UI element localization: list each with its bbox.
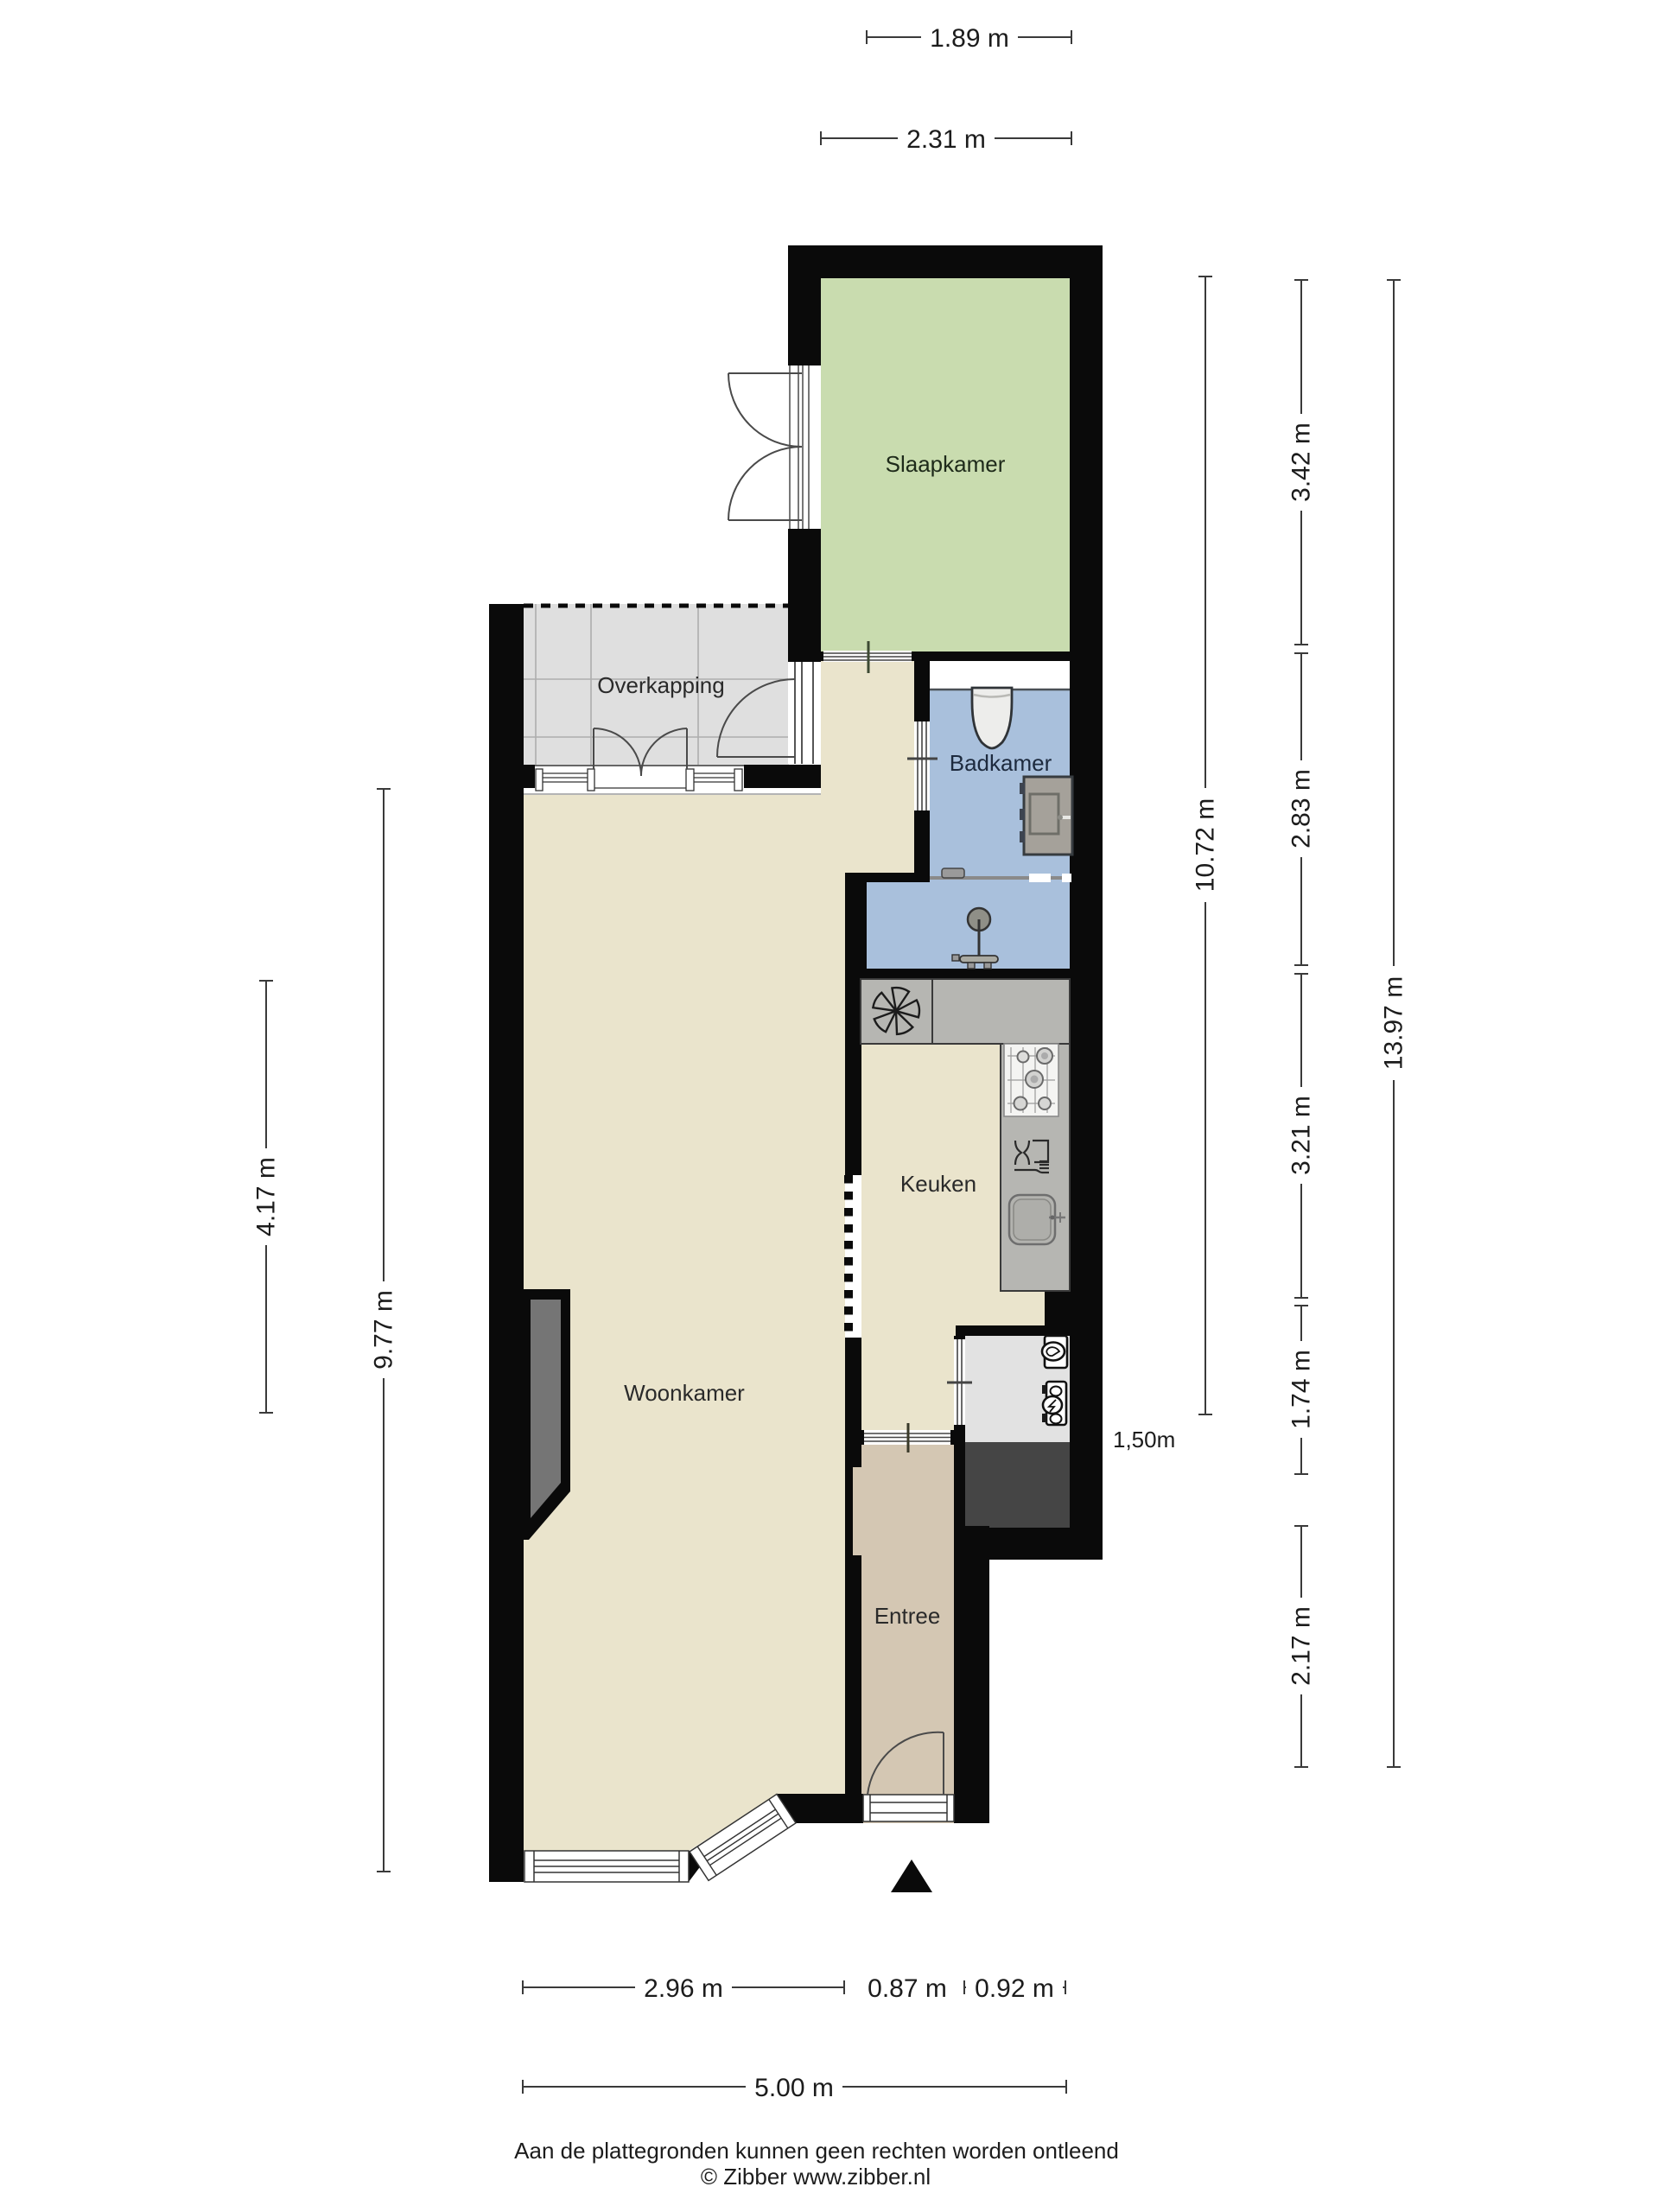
svg-text:Badkamer: Badkamer [950,750,1052,776]
svg-text:Overkapping: Overkapping [597,672,724,698]
svg-text:Woonkamer: Woonkamer [624,1380,745,1406]
svg-text:2.83 m: 2.83 m [1287,769,1316,849]
svg-text:Slaapkamer: Slaapkamer [886,451,1006,477]
svg-text:13.97 m: 13.97 m [1380,976,1408,1070]
svg-text:3.42 m: 3.42 m [1287,423,1316,502]
svg-text:4.17 m: 4.17 m [252,1157,281,1236]
svg-text:0.87 m: 0.87 m [868,1974,947,2003]
svg-text:1,50m: 1,50m [1113,1427,1175,1452]
svg-text:2.17 m: 2.17 m [1287,1606,1316,1686]
svg-text:5.00 m: 5.00 m [754,2074,834,2102]
svg-text:10.72 m: 10.72 m [1192,798,1220,892]
svg-text:3.21 m: 3.21 m [1287,1096,1316,1175]
svg-text:9.77 m: 9.77 m [370,1290,398,1370]
svg-text:Keuken: Keuken [900,1171,976,1197]
svg-text:Aan de plattegronden kunnen ge: Aan de plattegronden kunnen geen rechten… [514,2138,1119,2164]
svg-text:1.74 m: 1.74 m [1287,1350,1316,1429]
svg-text:2.31 m: 2.31 m [906,125,986,154]
svg-text:1.89 m: 1.89 m [930,24,1009,53]
svg-text:2.96 m: 2.96 m [644,1974,723,2003]
svg-text:0.92 m: 0.92 m [975,1974,1054,2003]
svg-text:Entree: Entree [874,1603,941,1629]
svg-text:© Zibber www.zibber.nl: © Zibber www.zibber.nl [701,2164,931,2190]
